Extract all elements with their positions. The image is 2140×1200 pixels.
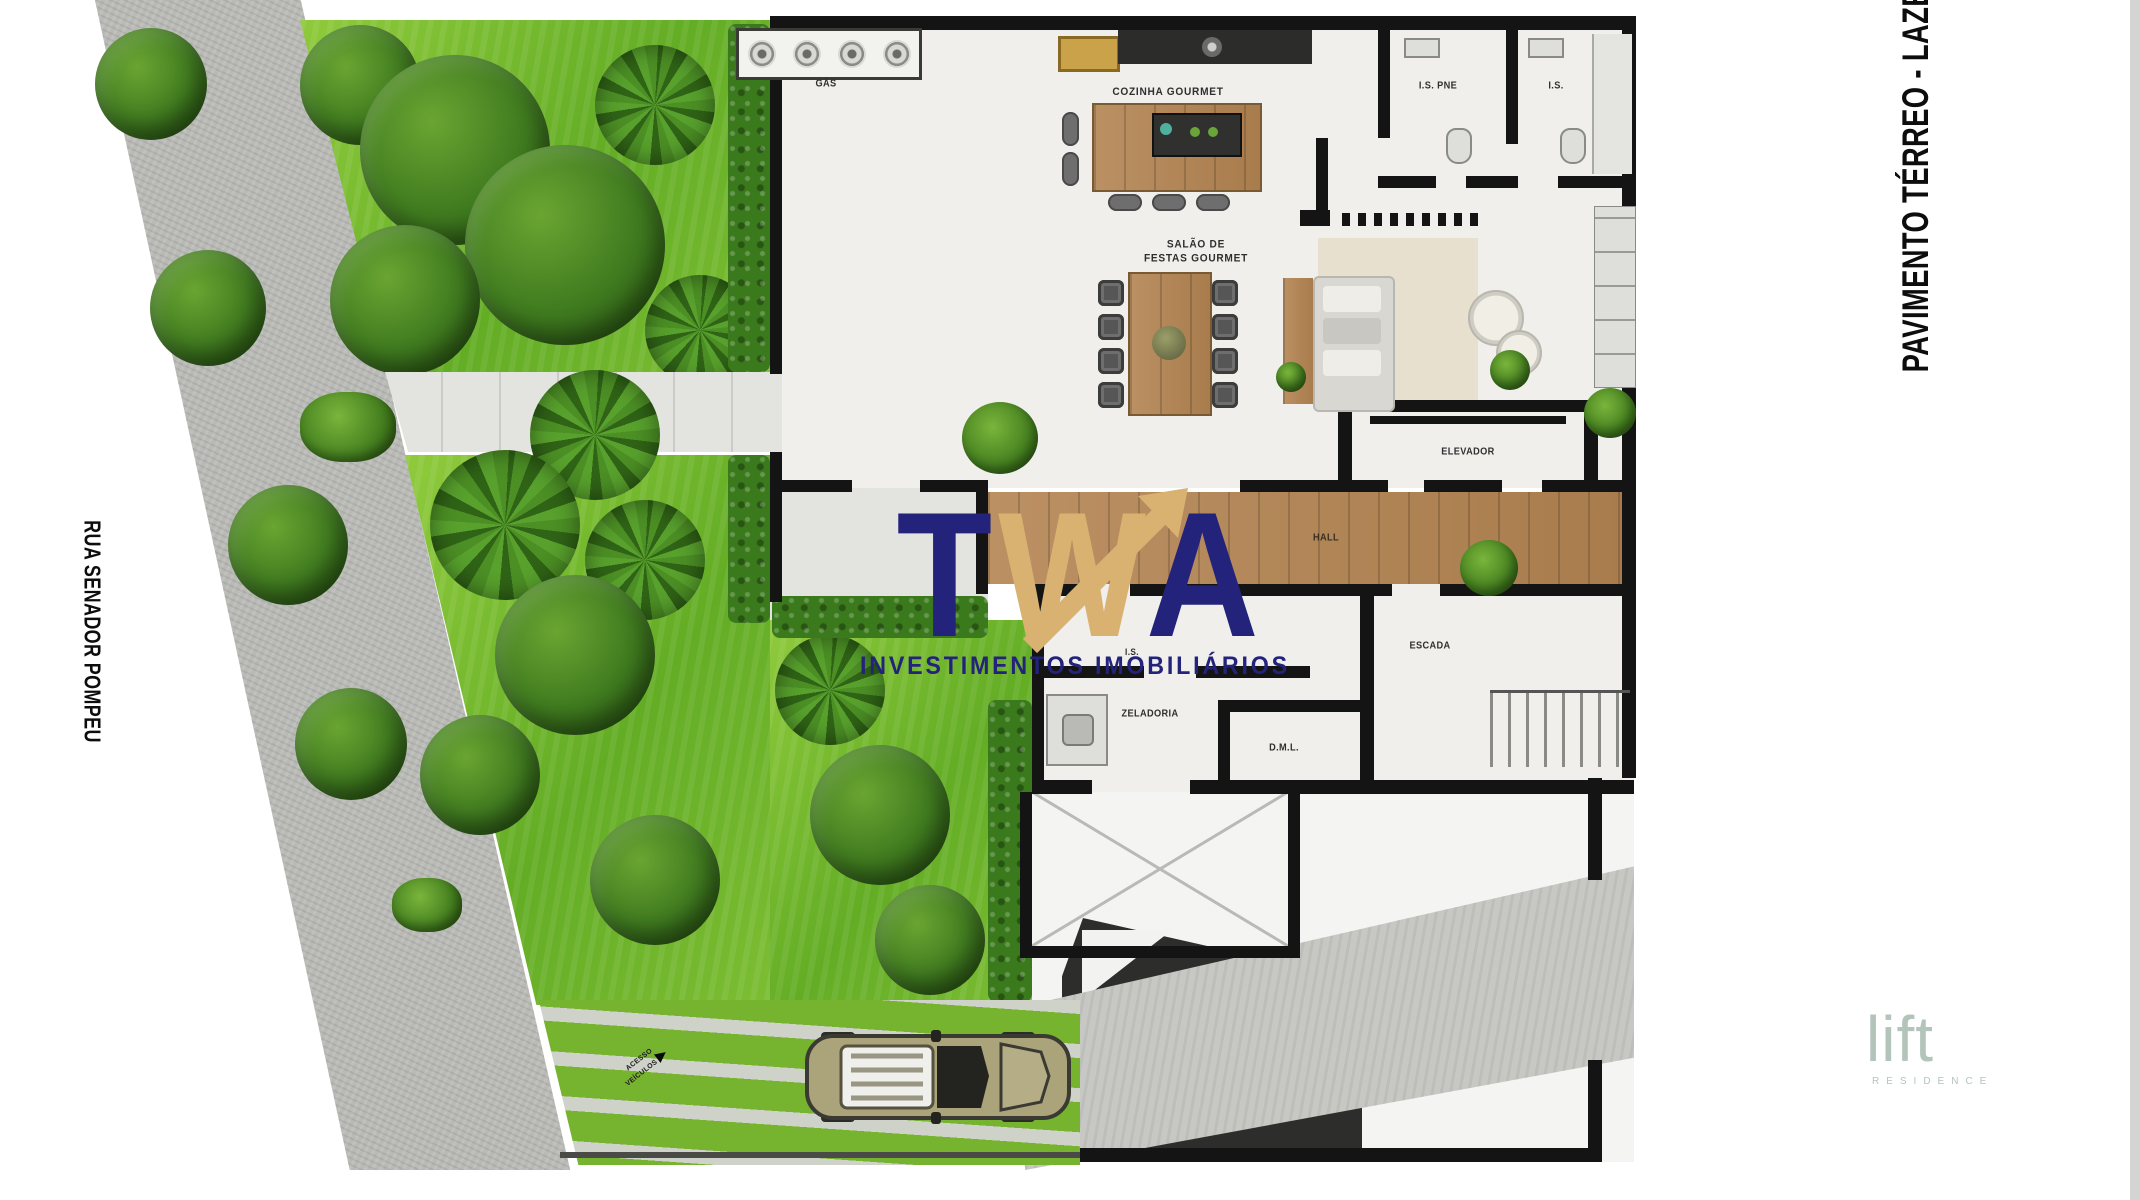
wall — [1588, 1060, 1602, 1162]
cooktop-icon — [1202, 37, 1222, 57]
dining-chair — [1212, 314, 1238, 340]
room-label-is: I.S. — [1548, 81, 1563, 92]
dining-chair — [1098, 382, 1124, 408]
room-label-salao: SALÃO DE FESTAS GOURMET — [1144, 238, 1248, 267]
service-sink-counter — [1046, 694, 1108, 766]
room-label-escada: ESCADA — [1409, 641, 1450, 652]
centerpiece — [1152, 326, 1186, 360]
toilet — [1560, 128, 1586, 164]
sofa — [1313, 276, 1395, 412]
kitchen-doormat — [1058, 36, 1120, 72]
twa-tagline: INVESTIMENTOS IMOBILIÁRIOS — [860, 652, 1290, 681]
wall — [1020, 946, 1300, 958]
wall — [1378, 16, 1390, 138]
elevator-wall — [1424, 480, 1502, 492]
dining-chair — [1212, 382, 1238, 408]
elevator-wall — [1542, 480, 1598, 492]
dining-chair — [1098, 348, 1124, 374]
wall — [1558, 176, 1634, 188]
hedge — [728, 455, 770, 623]
bar-stool — [1152, 194, 1186, 211]
garden-tree — [330, 225, 480, 375]
wall — [1466, 176, 1518, 188]
gas-meter-icon — [748, 40, 776, 68]
sidewalk-grass-patch — [300, 392, 396, 462]
garden-tree — [810, 745, 950, 885]
lift-logo: lift RESIDENCE — [1866, 1002, 2086, 1087]
twa-arrow-icon — [1010, 478, 1200, 663]
room-label-is-pne: I.S. PNE — [1419, 81, 1457, 92]
wall — [1190, 780, 1634, 794]
sofa-cushion — [1323, 286, 1381, 312]
garden-tree — [465, 145, 665, 345]
lift-logo-name: lift — [1866, 1002, 2086, 1076]
storage-shelves — [1594, 206, 1636, 388]
bar-stool — [1062, 152, 1079, 186]
elevator-counterweight — [1370, 416, 1566, 424]
garden-tree — [875, 885, 985, 995]
uncovered-area-x — [1032, 792, 1288, 946]
wall — [1288, 792, 1300, 958]
burner-icon — [1160, 123, 1172, 135]
garden-tree — [590, 815, 720, 945]
wall — [1506, 16, 1518, 144]
sofa-cushion — [1323, 318, 1381, 344]
room-label-zeladoria: ZELADORIA — [1122, 709, 1179, 720]
street-tree — [228, 485, 348, 605]
dining-table — [1128, 272, 1212, 416]
wall — [1032, 780, 1092, 794]
street-tree — [95, 28, 207, 140]
elevator-wall — [1338, 400, 1352, 492]
wall — [1588, 778, 1602, 880]
bar-stool — [1196, 194, 1230, 211]
stair-treads — [1490, 690, 1630, 767]
street-name-label: RUA SENADOR POMPEU — [79, 515, 106, 749]
wall — [1080, 1148, 1602, 1162]
service-sink — [1062, 714, 1094, 746]
lift-logo-tagline: RESIDENCE — [1866, 1076, 2086, 1087]
burner-icon — [1208, 127, 1218, 137]
wall — [1300, 210, 1330, 226]
bar-stool — [1108, 194, 1142, 211]
toilet — [1446, 128, 1472, 164]
street-tree — [150, 250, 266, 366]
wall — [782, 480, 852, 492]
kitchen-island — [1092, 103, 1262, 192]
bar-stool — [1062, 112, 1079, 146]
gas-meter-icon — [883, 40, 911, 68]
room-label-cozinha: COZINHA GOURMET — [1112, 86, 1223, 98]
site-boundary-line — [560, 1152, 1080, 1158]
sofa-cushion — [1323, 350, 1381, 376]
wall — [1360, 584, 1374, 792]
wall — [1598, 480, 1636, 492]
plant — [1584, 388, 1636, 438]
garden-tree — [495, 575, 655, 735]
plant — [962, 402, 1038, 474]
wall — [1218, 700, 1360, 712]
shower — [1592, 34, 1632, 174]
wall — [1378, 176, 1436, 188]
car — [805, 1030, 1077, 1124]
wall — [770, 452, 782, 602]
sink — [1528, 38, 1564, 58]
dining-chair — [1098, 280, 1124, 306]
street-tree — [295, 688, 407, 800]
gas-meter-box — [736, 28, 922, 80]
floorplan-board: ACESSO SOCIAL ▶ ACESSO VEÍCULO — [0, 0, 2140, 1200]
room-label-dml: D.M.L. — [1269, 743, 1299, 754]
plant — [1460, 540, 1518, 596]
twa-watermark: T W A INVESTIMENTOS IMOBILIÁRIOS — [860, 470, 1280, 700]
dining-chair — [1212, 348, 1238, 374]
gas-meter-icon — [793, 40, 821, 68]
sink — [1404, 38, 1440, 58]
plant — [1490, 350, 1530, 390]
room-label-gas: GÁS — [815, 79, 836, 90]
room-label-elevador: ELEVADOR — [1441, 447, 1494, 458]
dining-chair — [1098, 314, 1124, 340]
page-edge — [2130, 0, 2140, 1200]
sidewalk-grass-patch — [392, 878, 462, 932]
floor-title-label: PAVIMENTO TÉRREO - LAZER — [1895, 62, 1937, 373]
kitchen-counter — [1118, 30, 1312, 64]
elevator-wall — [1338, 480, 1388, 492]
room-label-hall: HALL — [1313, 533, 1339, 544]
garden-tree — [420, 715, 540, 835]
garden-palm — [595, 45, 715, 165]
wall — [1316, 138, 1328, 216]
wall — [1020, 792, 1032, 958]
slat-partition — [1342, 213, 1482, 226]
gas-meter-icon — [838, 40, 866, 68]
burner-icon — [1190, 127, 1200, 137]
dining-chair — [1212, 280, 1238, 306]
twa-letter-t: T — [897, 490, 993, 660]
plant — [1276, 362, 1306, 392]
